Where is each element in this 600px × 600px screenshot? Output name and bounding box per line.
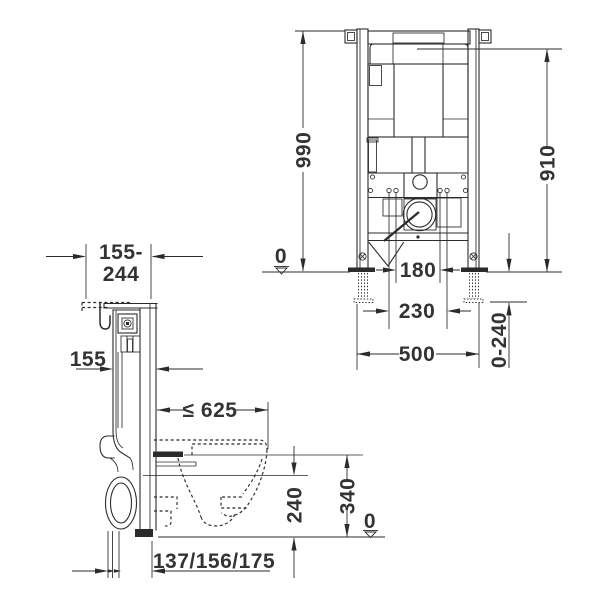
fixing-bolt — [438, 188, 442, 192]
dim-wall-offset-line2: 244 — [103, 263, 140, 286]
threaded-rod-left — [354, 273, 373, 303]
drain-elbow — [106, 477, 137, 578]
filling-pipe — [369, 140, 377, 172]
installation-frame-side — [82, 303, 157, 538]
wall-bracket-right — [479, 30, 491, 43]
mounting-plate — [404, 173, 437, 198]
dim-frame-width: 500 — [399, 343, 436, 366]
cistern-front — [368, 31, 470, 137]
wall-bracket-left — [345, 30, 357, 43]
flush-plate-opening — [393, 33, 444, 43]
technical-drawing: 990 910 0 180 — [0, 0, 600, 600]
fixing-bolt — [445, 188, 449, 192]
dim-bolt-spacing: 180 — [400, 259, 437, 282]
drain-connection — [368, 198, 468, 266]
flush-pipe-connector — [153, 452, 183, 458]
foot-plate-left — [348, 268, 375, 273]
frame-rails — [345, 29, 491, 268]
dim-outlet-height: 240 — [284, 487, 307, 524]
dimensions-side: 155- 244 155 ≤ 625 240 — [46, 241, 385, 578]
dim-foot-adjustment: 0-240 — [488, 312, 511, 368]
side-view: 155- 244 155 ≤ 625 240 — [46, 241, 385, 578]
toilet-bowl-dashed — [143, 440, 363, 526]
drain-socket — [403, 198, 435, 230]
foot-side — [135, 529, 153, 537]
fill-valve-access — [370, 66, 382, 86]
fixing-bolt — [387, 188, 391, 192]
flush-mechanism — [367, 137, 468, 198]
datum-zero-side: 0 — [364, 510, 376, 533]
dim-rim-height: 340 — [337, 478, 360, 515]
dim-overall-height: 990 — [293, 132, 316, 169]
foot-plate-right — [461, 268, 488, 273]
cistern-side — [100, 310, 140, 472]
dim-frame-depth: 155 — [70, 348, 107, 371]
dim-max-depth: ≤ 625 — [183, 399, 238, 422]
wall-hook — [100, 303, 110, 329]
drain-funnel — [369, 243, 404, 267]
datum-zero-front: 0 — [275, 245, 287, 268]
front-view: 990 910 0 180 — [262, 29, 562, 370]
dim-foot-spacing: 230 — [399, 300, 436, 323]
fixing-bolt — [394, 188, 398, 192]
threaded-rod-right — [464, 273, 483, 303]
dim-wall-offset-line1: 155- — [99, 241, 143, 264]
datum-triangle — [276, 268, 287, 274]
dim-cistern-top-height: 910 — [537, 145, 560, 182]
flush-bend — [100, 436, 114, 458]
dim-outlet-offsets: 137/156/175 — [153, 550, 275, 573]
